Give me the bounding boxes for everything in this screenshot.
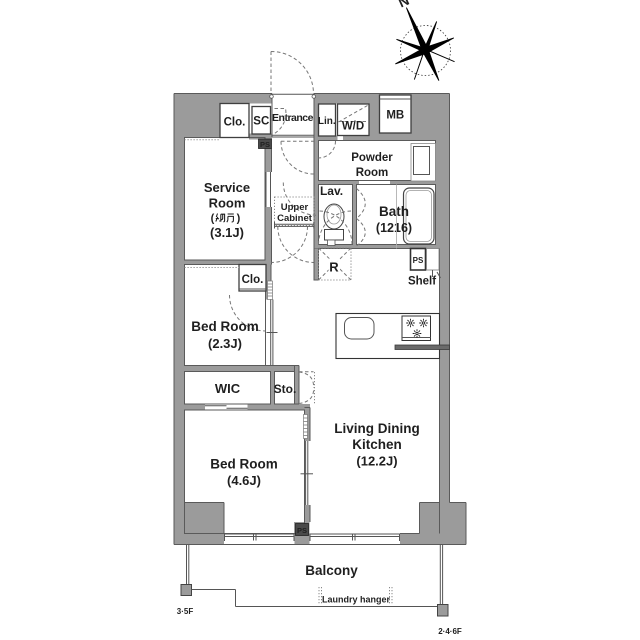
svg-text:(1216): (1216) xyxy=(376,221,412,235)
svg-text:Entrance: Entrance xyxy=(272,112,314,124)
svg-text:Balcony: Balcony xyxy=(305,563,358,578)
svg-text:(3.1J): (3.1J) xyxy=(210,225,244,240)
svg-text:Clo.: Clo. xyxy=(242,274,264,286)
svg-text:Sto.: Sto. xyxy=(274,382,297,396)
svg-text:Service: Service xyxy=(204,180,250,195)
svg-text:MB: MB xyxy=(386,110,404,122)
svg-text:SC: SC xyxy=(253,116,269,128)
svg-text:(2.3J): (2.3J) xyxy=(208,336,242,351)
svg-text:3·5F: 3·5F xyxy=(177,607,194,616)
svg-text:Bed Room: Bed Room xyxy=(210,457,278,472)
svg-text:Shelf: Shelf xyxy=(408,276,436,288)
svg-text:(: ( xyxy=(211,213,215,225)
svg-text:Bed Room: Bed Room xyxy=(191,319,259,334)
svg-text:2·4·6F: 2·4·6F xyxy=(438,627,462,636)
svg-text:): ) xyxy=(237,213,241,225)
svg-text:W/D: W/D xyxy=(342,121,364,133)
svg-text:PS: PS xyxy=(413,256,424,265)
svg-text:Room: Room xyxy=(209,196,246,211)
svg-text:Lav.: Lav. xyxy=(320,184,343,198)
svg-text:Living Dining: Living Dining xyxy=(334,421,420,436)
svg-text:Upper: Upper xyxy=(281,202,309,213)
svg-text:Clo.: Clo. xyxy=(224,117,246,129)
svg-text:PS: PS xyxy=(260,140,270,149)
svg-text:Cabinet: Cabinet xyxy=(277,213,313,224)
svg-text:(4.6J): (4.6J) xyxy=(227,473,261,488)
svg-text:Lin.: Lin. xyxy=(318,116,336,127)
svg-text:(12.2J): (12.2J) xyxy=(356,454,397,469)
svg-text:Kitchen: Kitchen xyxy=(352,437,402,452)
svg-text:Laundry hanger: Laundry hanger xyxy=(322,595,391,605)
svg-text:Bath: Bath xyxy=(379,204,409,219)
svg-text:R: R xyxy=(329,260,339,275)
svg-text:WIC: WIC xyxy=(215,381,241,396)
svg-text:PS: PS xyxy=(297,526,307,535)
svg-text:Room: Room xyxy=(356,167,389,179)
svg-text:Powder: Powder xyxy=(351,152,393,164)
